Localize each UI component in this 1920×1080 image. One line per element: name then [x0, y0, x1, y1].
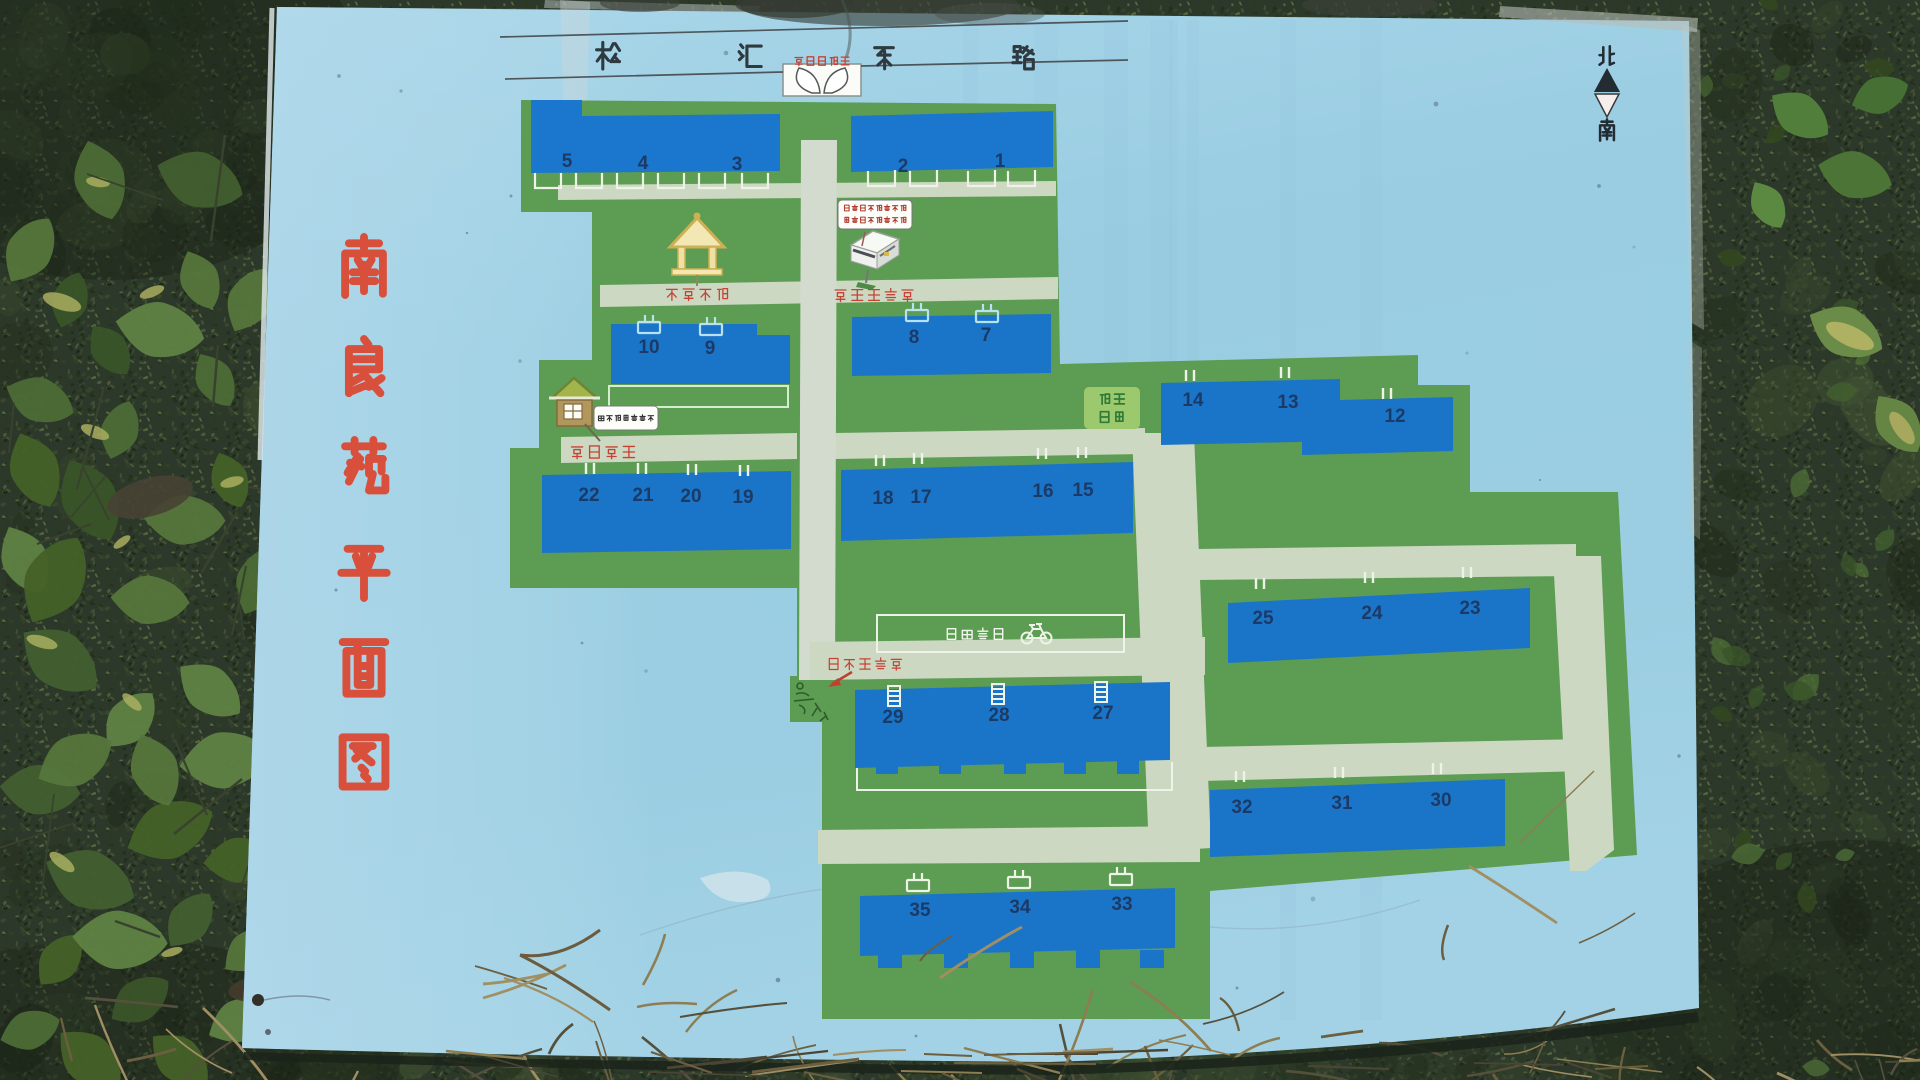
svg-text:31: 31: [1331, 793, 1353, 814]
svg-text:35: 35: [909, 900, 931, 921]
svg-text:25: 25: [1252, 608, 1274, 629]
svg-text:21: 21: [632, 485, 654, 506]
svg-text:10: 10: [638, 337, 659, 358]
svg-text:12: 12: [1384, 406, 1405, 427]
svg-text:8: 8: [909, 327, 920, 348]
svg-text:15: 15: [1072, 480, 1094, 501]
svg-text:13: 13: [1277, 392, 1298, 413]
svg-text:9: 9: [705, 338, 716, 359]
svg-text:30: 30: [1430, 790, 1451, 811]
svg-text:19: 19: [732, 487, 753, 508]
svg-text:23: 23: [1459, 598, 1480, 619]
svg-text:32: 32: [1231, 797, 1252, 818]
svg-text:17: 17: [910, 487, 931, 508]
svg-text:33: 33: [1111, 894, 1132, 915]
svg-text:24: 24: [1361, 603, 1383, 624]
svg-text:27: 27: [1092, 703, 1113, 724]
svg-text:3: 3: [732, 154, 743, 175]
svg-text:22: 22: [578, 485, 599, 506]
svg-text:1: 1: [995, 151, 1006, 172]
svg-text:18: 18: [872, 488, 893, 509]
svg-text:28: 28: [988, 705, 1009, 726]
svg-text:34: 34: [1009, 897, 1031, 918]
svg-text:20: 20: [680, 486, 701, 507]
svg-text:4: 4: [638, 153, 649, 174]
svg-text:14: 14: [1182, 390, 1204, 411]
svg-text:7: 7: [981, 325, 992, 346]
svg-text:5: 5: [562, 151, 573, 172]
svg-text:16: 16: [1032, 481, 1053, 502]
svg-text:2: 2: [898, 156, 909, 177]
svg-text:29: 29: [882, 707, 903, 728]
